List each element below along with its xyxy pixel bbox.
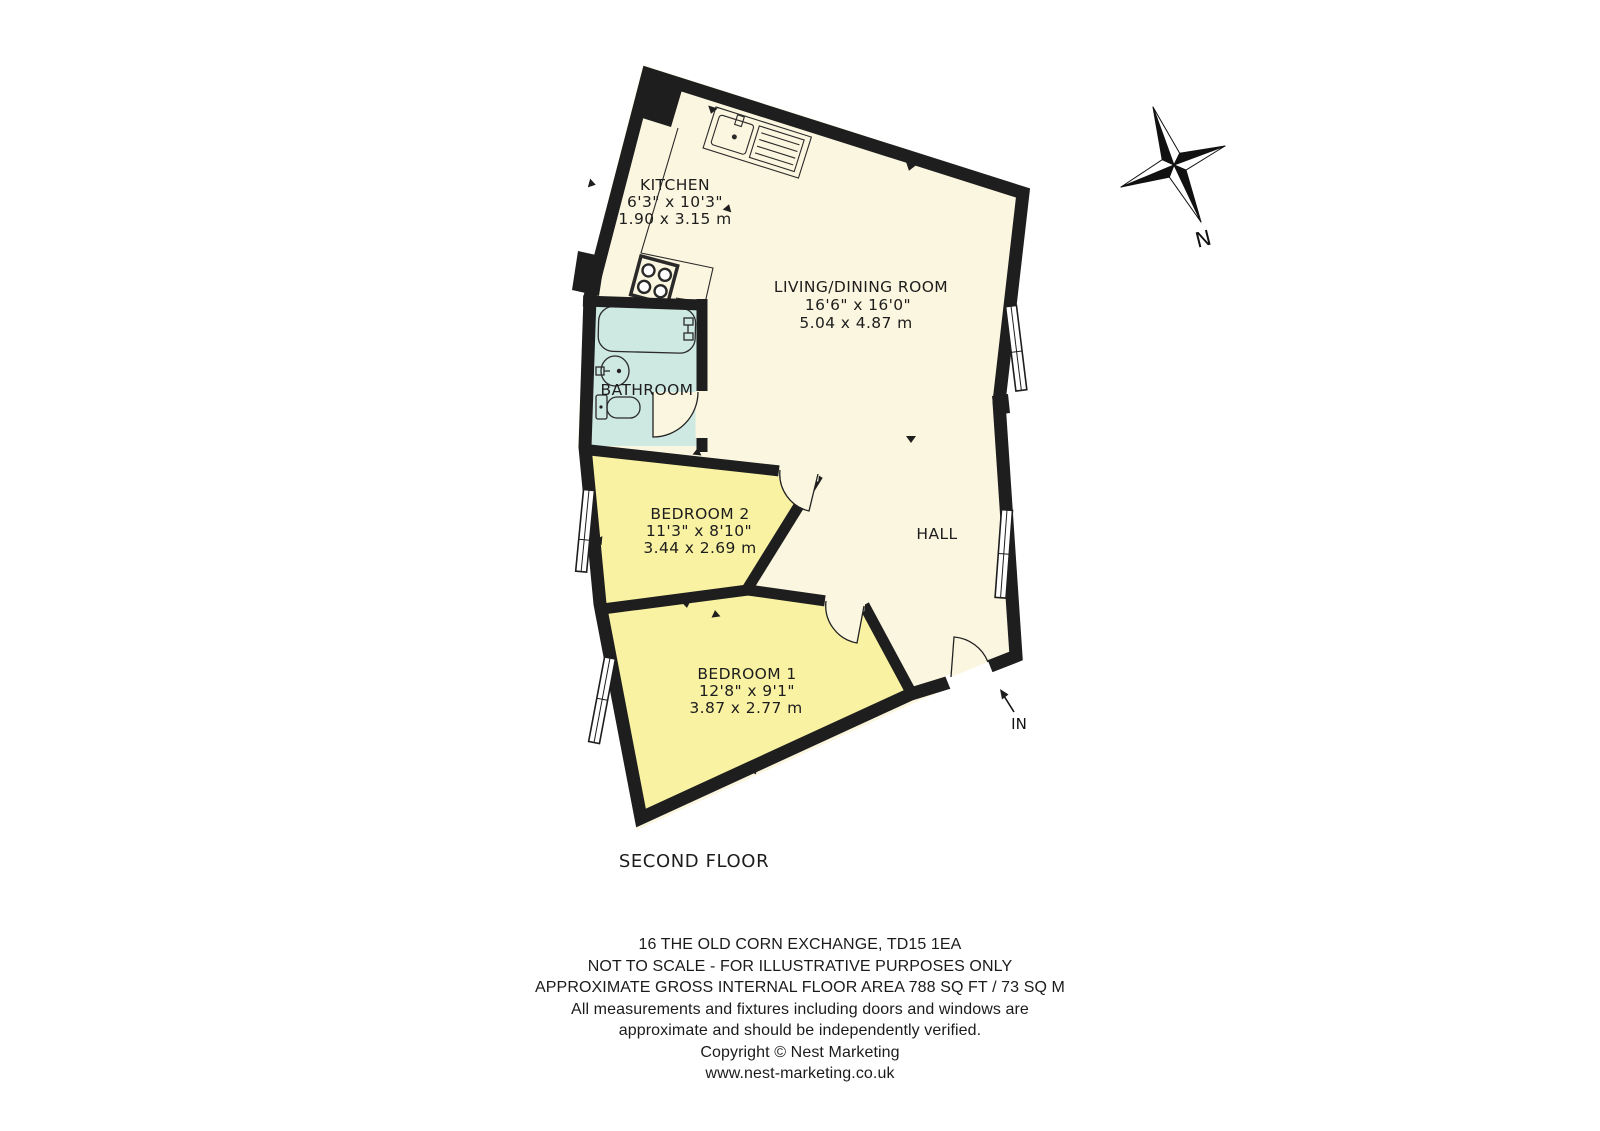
copyright-line: Copyright © Nest Marketing	[0, 1042, 1600, 1064]
bedroom2-size-imperial: 11'3" x 8'10"	[646, 522, 752, 540]
living-dining-size-metric: 5.04 x 4.87 m	[799, 314, 912, 332]
entrance-marker: IN	[1000, 689, 1027, 733]
bedroom1-window	[589, 657, 616, 744]
bedroom2-label: BEDROOM 2	[650, 505, 749, 523]
kitchen-size-metric: 1.90 x 3.15 m	[618, 210, 731, 228]
floor-area-line: APPROXIMATE GROSS INTERNAL FLOOR AREA 78…	[0, 977, 1600, 999]
bedroom1-size-metric: 3.87 x 2.77 m	[689, 699, 802, 717]
bathroom-top-wall	[583, 301, 702, 305]
entrance-label: IN	[1011, 715, 1027, 733]
floor-title: SECOND FLOOR	[619, 851, 769, 872]
website-line: www.nest-marketing.co.uk	[0, 1063, 1600, 1085]
measurements-disclaimer-line2: approximate and should be independently …	[0, 1020, 1600, 1042]
entrance-arrow-icon	[1004, 696, 1014, 712]
address-line: 16 THE OLD CORN EXCHANGE, TD15 1EA	[0, 934, 1600, 956]
compass-north-label: N	[1193, 226, 1214, 253]
compass-rose-icon	[1121, 107, 1225, 222]
hall-label: HALL	[916, 525, 957, 543]
measurements-disclaimer-line1: All measurements and fixtures including …	[0, 999, 1600, 1021]
kitchen-size-imperial: 6'3" x 10'3"	[627, 193, 723, 211]
bedroom1-label: BEDROOM 1	[697, 665, 796, 683]
entrance-arrowhead-icon	[1000, 689, 1009, 700]
wall-pier-right	[992, 394, 1010, 415]
floorplan-page: KITCHEN 6'3" x 10'3" 1.90 x 3.15 m LIVIN…	[0, 0, 1600, 1131]
bedroom2-size-metric: 3.44 x 2.69 m	[643, 539, 756, 557]
kitchen-label: KITCHEN	[640, 176, 710, 194]
scale-disclaimer-line: NOT TO SCALE - FOR ILLUSTRATIVE PURPOSES…	[0, 956, 1600, 978]
bathroom-label: BATHROOM	[601, 381, 694, 399]
living-dining-label: LIVING/DINING ROOM	[774, 278, 948, 296]
living-dining-size-imperial: 16'6" x 16'0"	[805, 296, 911, 314]
disclaimer-block: 16 THE OLD CORN EXCHANGE, TD15 1EA NOT T…	[0, 934, 1600, 1085]
bedroom1-size-imperial: 12'8" x 9'1"	[699, 682, 795, 700]
